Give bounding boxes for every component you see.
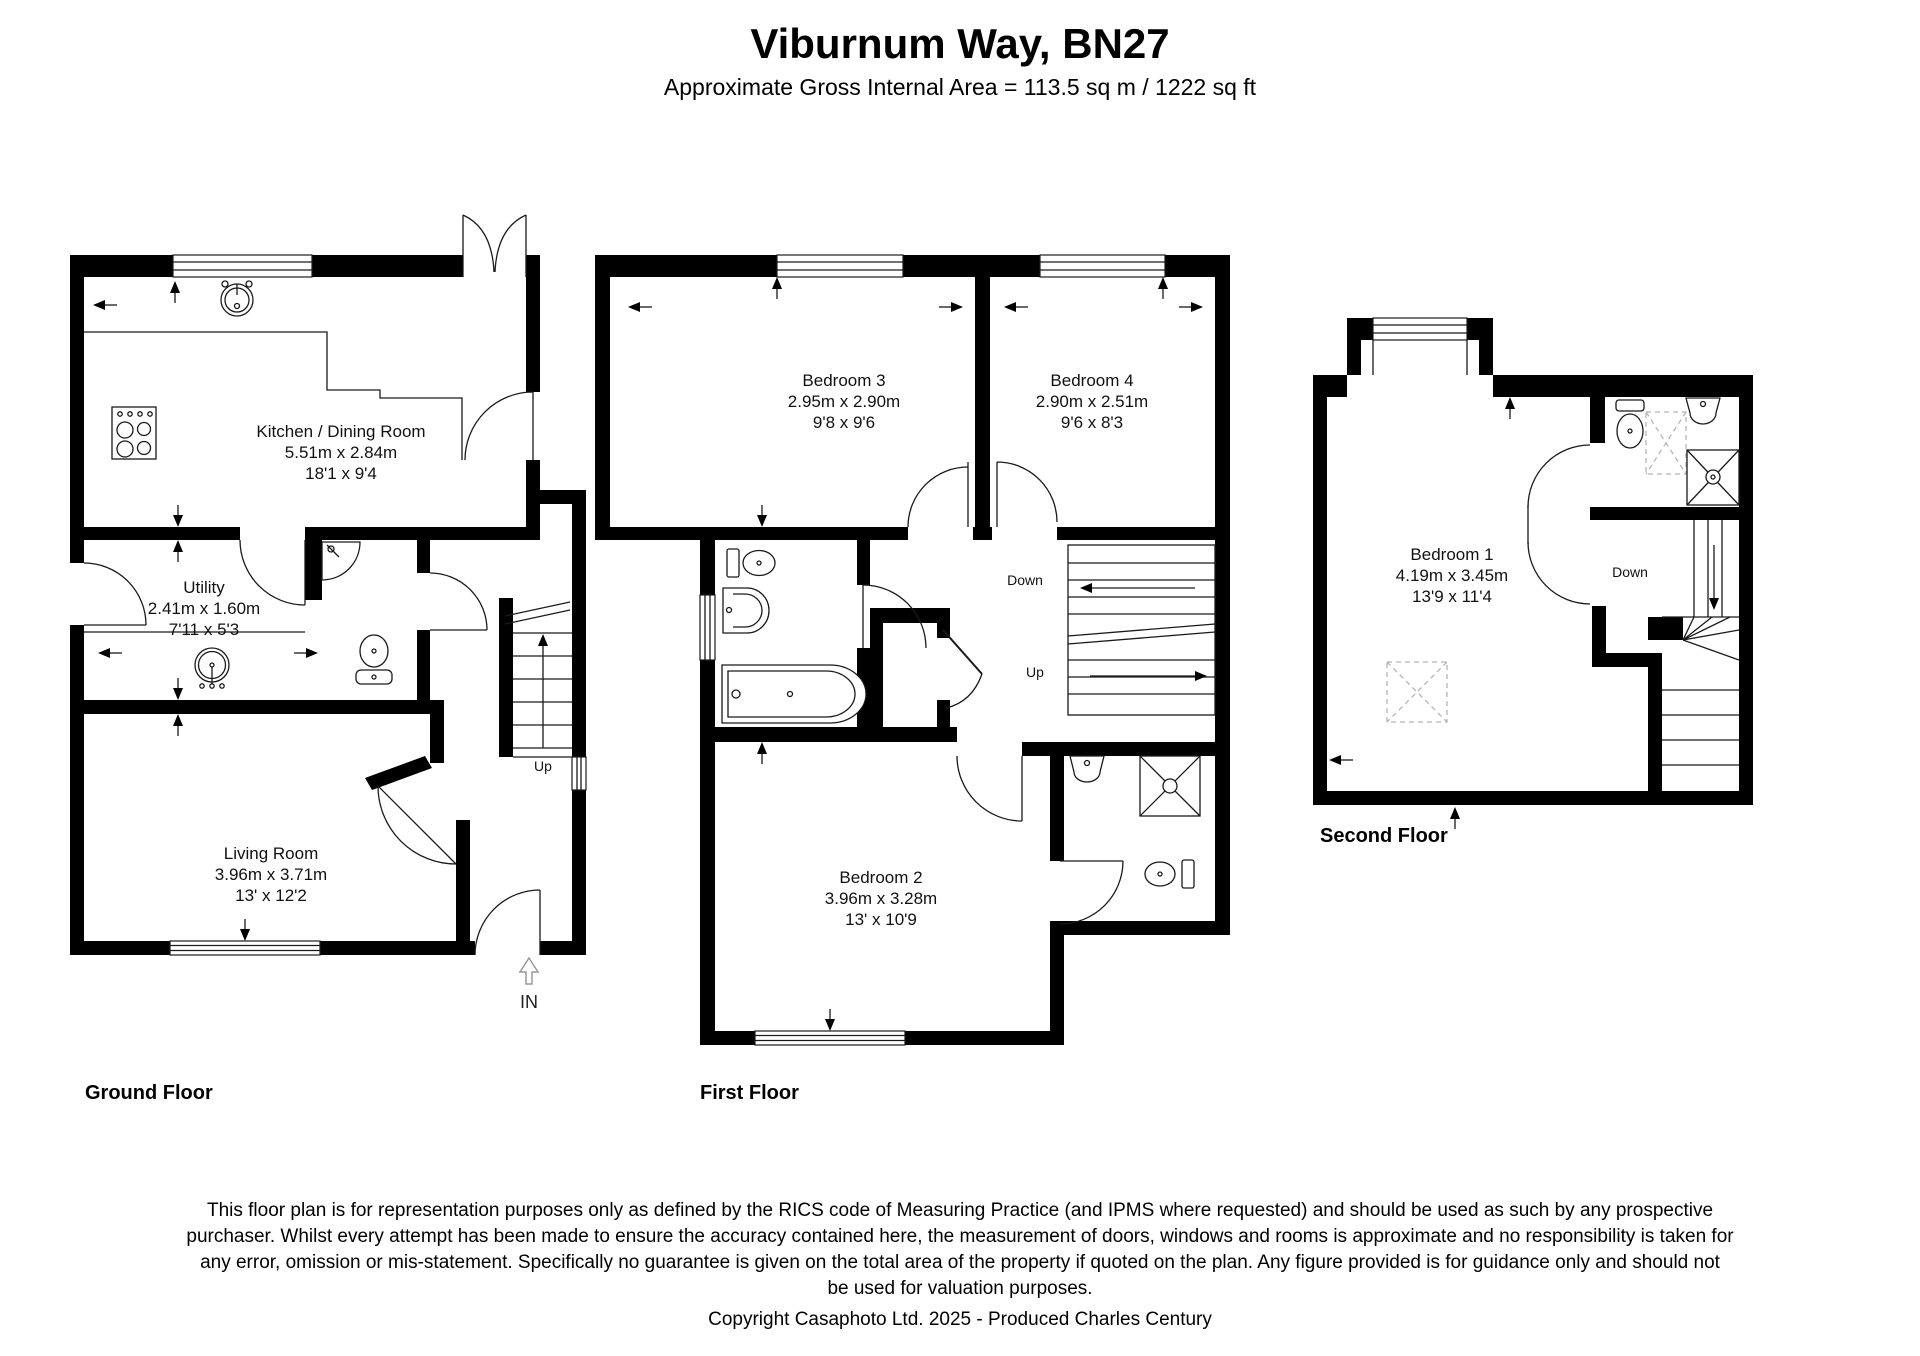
basin-icon	[1686, 398, 1720, 424]
corner-basin-icon	[322, 542, 360, 580]
window	[173, 255, 312, 277]
window	[755, 1031, 905, 1045]
washing-machine-icon	[195, 648, 229, 688]
disclaimer: This floor plan is for representation pu…	[0, 1198, 1920, 1333]
door-arc	[1528, 445, 1590, 604]
window	[700, 595, 715, 660]
second-floor-plan	[1313, 318, 1753, 829]
room-label-kitchen: Kitchen / Dining Room 5.51m x 2.84m 18'1…	[256, 421, 425, 484]
first-floor-label: First Floor	[700, 1082, 799, 1105]
room-label-bedroom2: Bedroom 2 3.96m x 3.28m 13' x 10'9	[825, 867, 937, 930]
disclaimer-line: be used for valuation purposes.	[0, 1276, 1920, 1302]
window	[1040, 255, 1165, 277]
basin-icon	[723, 588, 769, 633]
door-arc	[997, 462, 1057, 527]
window	[170, 941, 320, 955]
door-arc	[1060, 861, 1123, 924]
disclaimer-line: purchaser. Whilst every attempt has been…	[0, 1224, 1920, 1250]
shower-icon	[1140, 756, 1200, 816]
window	[1373, 318, 1467, 375]
stairs-down-label: Down	[1007, 572, 1043, 588]
door-arc	[84, 563, 146, 625]
cupboard-door	[943, 630, 982, 708]
disclaimer-line: This floor plan is for representation pu…	[0, 1198, 1920, 1224]
door-arc	[430, 573, 487, 630]
ground-floor-label: Ground Floor	[85, 1082, 213, 1105]
second-floor-label: Second Floor	[1320, 825, 1448, 848]
toilet-icon	[1145, 860, 1194, 888]
door-arc	[378, 786, 456, 864]
dimension-arrows	[1329, 397, 1515, 829]
room-label-utility: Utility 2.41m x 1.60m 7'11 x 5'3	[148, 577, 260, 640]
disclaimer-line: any error, omission or mis-statement. Sp…	[0, 1250, 1920, 1276]
room-label-bedroom3: Bedroom 3 2.95m x 2.90m 9'8 x 9'6	[788, 370, 900, 433]
window	[777, 255, 903, 277]
floorplan-drawing	[0, 0, 1920, 1356]
entrance-arrow-icon	[520, 958, 538, 984]
front-door-arc	[475, 890, 540, 955]
stairs-down-up	[1068, 545, 1215, 715]
door-arc	[908, 462, 968, 527]
door-arc	[957, 756, 1022, 821]
copyright-line: Copyright Casaphoto Ltd. 2025 - Produced…	[0, 1307, 1920, 1333]
room-label-living-room: Living Room 3.96m x 3.71m 13' x 12'2	[215, 843, 327, 906]
bath-icon	[722, 665, 866, 723]
window	[572, 757, 586, 790]
stairs-down-label: Down	[1612, 564, 1648, 580]
entrance-in-label: IN	[520, 992, 538, 1013]
stairs-up-label: Up	[534, 758, 552, 774]
basin-icon	[1070, 756, 1104, 782]
angled-wall	[365, 756, 432, 790]
stairs-down	[1662, 520, 1739, 765]
floorplan-page: Viburnum Way, BN27 Approximate Gross Int…	[0, 0, 1920, 1356]
room-label-bedroom4: Bedroom 4 2.90m x 2.51m 9'6 x 8'3	[1036, 370, 1148, 433]
room-label-bedroom1: Bedroom 1 4.19m x 3.45m 13'9 x 11'4	[1396, 544, 1508, 607]
french-doors-icon	[463, 215, 526, 277]
stairs-up-label: Up	[1026, 664, 1044, 680]
toilet-icon	[727, 549, 775, 577]
door-arc	[465, 392, 533, 460]
toilet-icon	[1616, 400, 1644, 448]
sink-icon	[221, 281, 253, 316]
hob-icon	[112, 407, 156, 459]
shower-icon	[1687, 450, 1739, 505]
toilet-icon	[356, 635, 392, 684]
stairs-up	[505, 602, 572, 757]
